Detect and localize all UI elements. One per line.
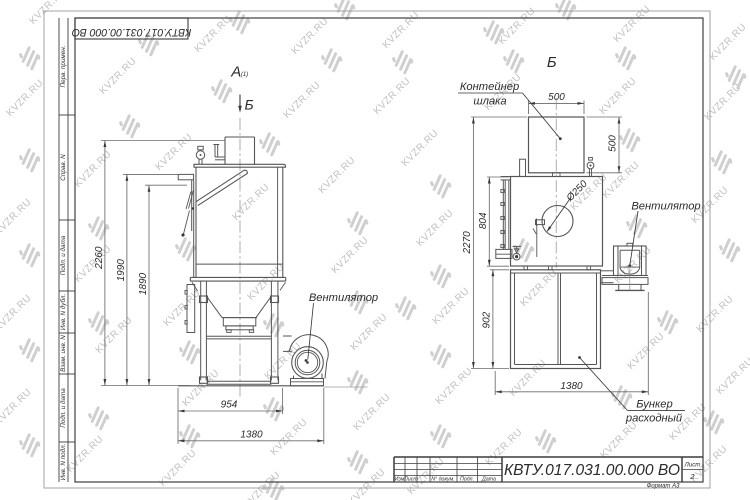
- svg-text:КВТУ.017.031.00.000 ВО: КВТУ.017.031.00.000 ВО: [72, 26, 192, 38]
- svg-text:954: 954: [221, 399, 238, 410]
- svg-text:Лист: Лист: [403, 476, 418, 482]
- svg-text:Справ. N: Справ. N: [60, 154, 67, 181]
- svg-text:1890: 1890: [138, 272, 149, 295]
- svg-text:Дата: Дата: [481, 476, 496, 482]
- svg-text:804: 804: [478, 212, 489, 229]
- svg-text:Подп.: Подп.: [460, 476, 474, 482]
- svg-text:500: 500: [548, 92, 565, 103]
- svg-text:Б: Б: [547, 54, 557, 71]
- svg-text:(1): (1): [241, 72, 248, 78]
- svg-text:1380: 1380: [240, 429, 263, 440]
- svg-text:2260: 2260: [94, 246, 105, 270]
- svg-text:1380: 1380: [560, 381, 583, 392]
- svg-text:2270: 2270: [462, 231, 473, 255]
- svg-text:Взам. инв. N: Взам. инв. N: [60, 335, 67, 372]
- svg-text:Перв. примен.: Перв. примен.: [60, 46, 67, 88]
- svg-text:Подп. и дата: Подп. и дата: [59, 388, 67, 428]
- svg-text:2: 2: [689, 472, 695, 481]
- svg-text:Б: Б: [244, 97, 253, 113]
- svg-text:Бункер: Бункер: [636, 399, 673, 411]
- svg-text:А: А: [230, 64, 241, 81]
- svg-text:1990: 1990: [116, 259, 127, 282]
- svg-text:Вентилятор: Вентилятор: [631, 201, 700, 213]
- svg-text:Вентилятор: Вентилятор: [309, 292, 378, 304]
- svg-text:902: 902: [482, 311, 493, 328]
- svg-text:КВТУ.017.031.00.000 ВО: КВТУ.017.031.00.000 ВО: [504, 462, 680, 479]
- svg-text:500: 500: [608, 135, 619, 152]
- svg-text:Подп. и дата: Подп. и дата: [59, 235, 67, 275]
- svg-text:шлака: шлака: [473, 96, 506, 108]
- svg-text:расходный: расходный: [625, 413, 682, 425]
- svg-text:Лист: Лист: [684, 462, 701, 469]
- svg-text:Контейнер: Контейнер: [460, 81, 519, 93]
- svg-text:N° докум.: N° докум.: [431, 476, 455, 482]
- svg-text:Формат А3: Формат А3: [647, 483, 680, 489]
- svg-text:Инв. N подл.: Инв. N подл.: [59, 444, 67, 481]
- svg-text:Инв. N дубл.: Инв. N дубл.: [59, 294, 67, 330]
